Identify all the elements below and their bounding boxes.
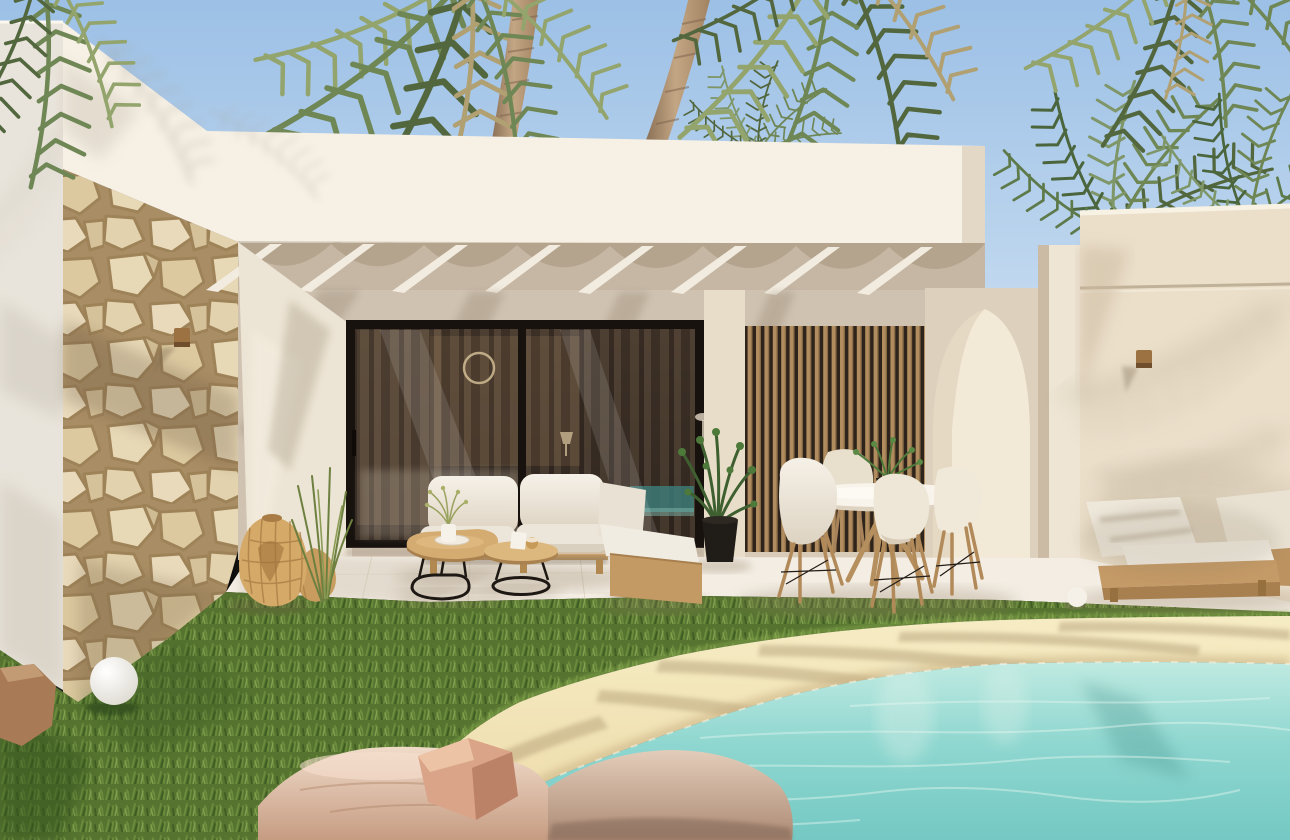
corner-column: [1038, 245, 1080, 600]
column-shade-edge: [1038, 245, 1049, 600]
villa-render: [0, 0, 1290, 840]
plant-pot: [702, 520, 738, 562]
lounger-leg: [1258, 580, 1266, 596]
sconce-base: [1136, 363, 1152, 368]
leaf: [871, 441, 877, 447]
leaf: [890, 437, 896, 443]
leaf: [696, 436, 704, 444]
pot-rim: [702, 516, 738, 524]
leaf: [678, 448, 686, 456]
leaf: [685, 489, 692, 496]
leaf: [712, 428, 720, 436]
lantern-rim: [262, 514, 282, 522]
door-handle: [352, 430, 356, 456]
sphere-lamp: [90, 657, 138, 705]
back-cushion: [520, 474, 604, 530]
leaf: [464, 500, 468, 504]
leaf: [909, 447, 915, 453]
card-box: [510, 531, 527, 549]
lounger-leg: [1110, 588, 1118, 602]
leaf: [751, 501, 758, 508]
leaf: [703, 463, 710, 470]
leaf: [853, 449, 859, 455]
lounger-reflection: [877, 667, 933, 763]
pebble: [1067, 587, 1087, 607]
soft-palm-shadow: [1080, 504, 1280, 576]
leaf: [727, 467, 734, 474]
leaf: [456, 490, 460, 494]
leaf: [441, 486, 445, 490]
leaf: [748, 466, 756, 474]
sconce-base: [174, 342, 190, 347]
fascia-end-face: [962, 146, 985, 245]
sofa-leg: [596, 560, 603, 574]
leaf: [917, 459, 923, 465]
scene-canvas: [0, 0, 1290, 840]
sun-loungers: [1080, 490, 1290, 602]
leaf: [428, 490, 432, 494]
leaf: [736, 442, 744, 450]
leaf: [425, 503, 429, 507]
vase: [441, 524, 456, 542]
candle-top: [526, 538, 538, 543]
